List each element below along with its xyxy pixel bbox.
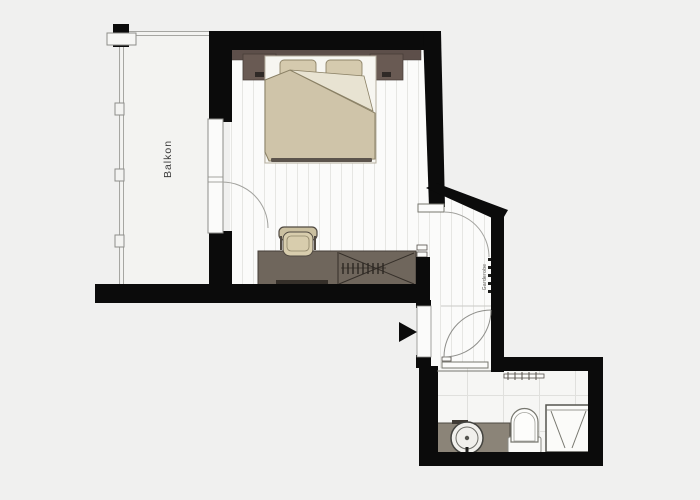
coat-rack-label: Garderobe	[482, 264, 488, 291]
wall-bathroom-left	[419, 366, 438, 458]
drain	[465, 436, 469, 440]
wall-bathroom-right	[588, 357, 603, 466]
desk-wardrobe-unit	[258, 251, 416, 286]
toilet	[508, 409, 541, 454]
balcony-pillar-cap	[107, 33, 136, 45]
wall-bathroom-bottom	[419, 452, 603, 466]
office-chair	[279, 227, 317, 256]
vanity	[437, 420, 510, 456]
floor-plan: Balkon Garderobe	[0, 0, 700, 500]
lamp-right	[382, 72, 391, 77]
wall-bottom	[95, 284, 419, 303]
wall-bedroom-right-lower	[416, 257, 430, 304]
room-door-leaf	[418, 204, 444, 212]
sliding-door-leaf	[442, 362, 488, 368]
wall-bedroom-left-upper	[209, 31, 232, 122]
shower	[546, 405, 591, 452]
desk-drawer	[276, 280, 328, 284]
duvet-edge	[271, 158, 372, 162]
wall-bathroom-top	[491, 357, 602, 371]
balcony-label: Balkon	[162, 140, 174, 178]
entrance-door-leaf	[417, 306, 431, 357]
wall-bedroom-top	[209, 31, 441, 50]
wall-hallway-right	[491, 209, 504, 372]
lamp-left	[255, 72, 264, 77]
